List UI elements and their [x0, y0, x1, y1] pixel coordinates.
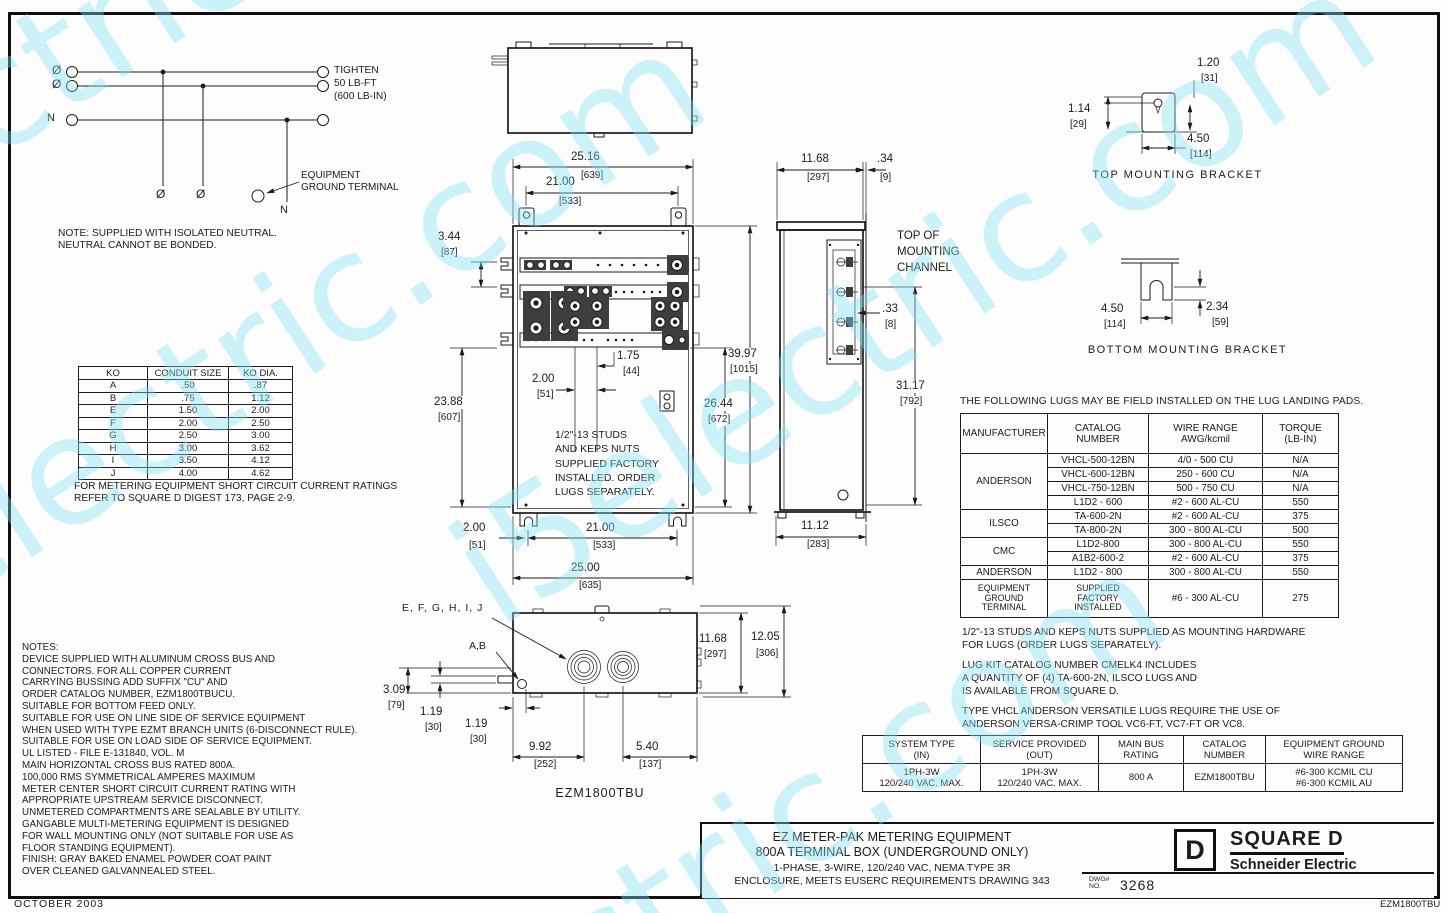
lug-cell: 375 [1263, 552, 1339, 566]
ko-cell: J [79, 467, 148, 480]
ko-cell: B [79, 392, 148, 405]
dim-label-mm: [87] [440, 247, 459, 259]
dim-label: 21.00 [545, 176, 576, 189]
dim-label-mm: [114] [1189, 149, 1213, 161]
lug-cell: 300 - 800 AL-CU [1149, 566, 1263, 580]
mounting-channel-label: TOP OF MOUNTING CHANNEL [897, 228, 960, 276]
bottom-view-caption: EZM1800TBU [540, 786, 660, 800]
dim-label-mm: [30] [469, 734, 488, 746]
dim-label-mm: [306] [755, 648, 779, 660]
spec-cell: 800 A [1099, 764, 1184, 792]
drawing-subtitle: 1-PHASE, 3-WIRE, 120/240 VAC, NEMA TYPE … [702, 862, 1082, 888]
phase-symbol: Ø [196, 188, 205, 202]
dim-label: 25.16 [570, 151, 601, 164]
ko-cell: 4.62 [229, 467, 293, 480]
dim-label-mm: [635] [578, 580, 602, 592]
dim-label-mm: [114] [1103, 319, 1127, 331]
wiring-schematic [67, 67, 329, 203]
dim-label: 11.68 [800, 153, 830, 166]
ko-cell: 2.50 [229, 417, 293, 430]
bottom-view [399, 606, 791, 762]
dim-label-mm: [533] [592, 540, 616, 552]
ko-cell: 3.50 [148, 455, 229, 468]
dim-label-mm: [9] [879, 172, 892, 184]
lug-cell: #2 - 600 AL-CU [1149, 510, 1263, 524]
dim-label: 23.88 [433, 396, 464, 409]
dim-label-mm: [137] [638, 759, 662, 771]
spec-cell: 1PH-3W 120/240 VAC. MAX. [863, 764, 981, 792]
title-block-divider [1082, 872, 1434, 874]
manufacturer-cell: ILSCO [961, 510, 1048, 538]
lug-cell: TA-600-2N [1048, 510, 1149, 524]
dim-label-mm: [51] [468, 540, 487, 552]
dim-label: 1.75 [616, 350, 640, 363]
col-header: KO [79, 367, 148, 380]
brand-name: SQUARE D [1230, 828, 1344, 855]
lug-cell: L1D2 - 600 [1048, 496, 1149, 510]
neutral-label: N [280, 204, 288, 217]
ko-cell: 2.50 [148, 430, 229, 443]
footer-date: OCTOBER 2003 [14, 898, 104, 910]
equipment-ground-label: EQUIPMENT GROUND TERMINAL [301, 170, 399, 194]
dim-label-mm: [31] [1200, 73, 1219, 85]
dim-label: 2.00 [462, 522, 486, 535]
top-view [492, 42, 697, 137]
lug-cell: 500 [1263, 524, 1339, 538]
phase-symbol: Ø [52, 64, 61, 78]
title-block-logo: D SQUARE D Schneider Electric DWG# NO. 3… [1082, 822, 1434, 898]
digest-note: FOR METERING EQUIPMENT SHORT CIRCUIT CUR… [74, 481, 397, 504]
ko-cell: .87 [229, 380, 293, 393]
dim-label-mm: [79] [387, 700, 406, 712]
dim-label-mm: [297] [806, 172, 830, 184]
col-header: SERVICE PROVIDED (OUT) [981, 736, 1099, 764]
lug-cell: 275 [1263, 580, 1339, 618]
dim-label-mm: [59] [1211, 317, 1230, 329]
dim-label-mm: [44] [622, 366, 641, 378]
lug-note-kit: LUG KIT CATALOG NUMBER CMELK4 INCLUDES A… [962, 660, 1197, 698]
lug-cell: VHCL-600-12BN [1048, 468, 1149, 482]
dim-label: 1.20 [1196, 57, 1220, 70]
dim-label-mm: [672] [707, 414, 731, 426]
dim-label-mm: [792] [899, 396, 923, 408]
lug-cell: N/A [1263, 482, 1339, 496]
lug-cell: 4/0 - 500 CU [1149, 454, 1263, 468]
dim-label: .33 [881, 303, 899, 316]
ko-cell: I [79, 455, 148, 468]
top-mounting-bracket [1104, 80, 1197, 154]
ko-cell: 1.12 [229, 392, 293, 405]
lug-cell: N/A [1263, 468, 1339, 482]
dim-label: 21.00 [585, 522, 616, 535]
col-header: MAIN BUS RATING [1099, 736, 1184, 764]
lug-cell: 250 - 600 CU [1149, 468, 1263, 482]
ko-cell: H [79, 442, 148, 455]
ko-cell: 3.62 [229, 442, 293, 455]
dim-label: 11.68 [698, 633, 728, 646]
dim-label: 39.97 [727, 348, 758, 361]
col-header: SYSTEM TYPE (IN) [863, 736, 981, 764]
lug-cell: 300 - 800 AL-CU [1149, 524, 1263, 538]
spec-table: SYSTEM TYPE (IN) SERVICE PROVIDED (OUT) … [862, 735, 1403, 792]
dim-label-mm: [639] [580, 170, 604, 182]
footer-part-number: EZM1800TBU [1380, 900, 1440, 911]
dim-label: 25.00 [570, 562, 601, 575]
dim-label: 2.00 [531, 373, 555, 386]
phase-symbol: Ø [156, 188, 165, 202]
dwg-label: DWG# NO. [1089, 876, 1109, 890]
dim-label: 1.19 [464, 718, 488, 731]
lug-cell: #2 - 600 AL-CU [1149, 496, 1263, 510]
neutral-label: N [47, 112, 55, 125]
col-header: KO DIA. [229, 367, 293, 380]
spec-cell: EZM1800TBU [1184, 764, 1266, 792]
dim-label-mm: [283] [806, 539, 830, 551]
drawing-sheet: i5electric.com i5electric.com i5electric… [0, 0, 1445, 913]
studs-note: 1/2"-13 STUDS AND KEPS NUTS SUPPLIED FAC… [555, 428, 659, 499]
dim-label: 12.05 [750, 631, 781, 644]
dim-label: 2.34 [1205, 301, 1229, 314]
ko-cell: 2.00 [148, 417, 229, 430]
dim-label: 9.92 [528, 741, 552, 754]
dim-label-mm: [1015] [729, 364, 759, 376]
col-header: CATALOG NUMBER [1184, 736, 1266, 764]
square-d-logo-letter: D [1185, 835, 1205, 865]
col-header: CATALOG NUMBER [1048, 414, 1149, 454]
bottom-bracket-caption: BOTTOM MOUNTING BRACKET [1085, 344, 1290, 357]
lug-cell: L1D2 - 800 [1048, 566, 1149, 580]
bottom-mounting-bracket [1121, 259, 1206, 324]
lug-note-studs: 1/2"-13 STUDS AND KEPS NUTS SUPPLIED AS … [962, 627, 1305, 653]
dim-label-mm: [29] [1069, 119, 1088, 131]
lug-cell: 500 - 750 CU [1149, 482, 1263, 496]
manufacturer-cell: EQUIPMENT GROUND TERMINAL [961, 580, 1048, 618]
col-header: CONDUIT SIZE [148, 367, 229, 380]
col-header: TORQUE (LB-IN) [1263, 414, 1339, 454]
lug-cell: 550 [1263, 566, 1339, 580]
brand-subname: Schneider Electric [1230, 857, 1357, 873]
lug-cell: #6 - 300 AL-CU [1149, 580, 1263, 618]
dim-label: 31.17 [895, 380, 926, 393]
dim-label: 1.19 [419, 706, 443, 719]
dim-label: 3.09 [382, 684, 406, 697]
lug-cell: VHCL-500-12BN [1048, 454, 1149, 468]
col-header: EQUIPMENT GROUND WIRE RANGE [1266, 736, 1403, 764]
manufacturer-cell: ANDERSON [961, 566, 1048, 580]
dim-label-mm: [51] [536, 389, 555, 401]
lug-cell: #2 - 600 AL-CU [1149, 552, 1263, 566]
ko-cell: 3.00 [229, 430, 293, 443]
dim-label-mm: [8] [884, 319, 897, 331]
col-header: WIRE RANGE AWG/kcmil [1149, 414, 1263, 454]
knockout-leader-label: E, F, G, H, I, J [402, 602, 483, 614]
lug-note-vhcl: TYPE VHCL ANDERSON VERSATILE LUGS REQUIR… [962, 706, 1280, 732]
dim-label: 4.50 [1186, 133, 1210, 146]
ko-cell: F [79, 417, 148, 430]
lug-cell: 550 [1263, 538, 1339, 552]
dim-label-mm: [607] [437, 412, 461, 424]
spec-cell: 1PH-3W 120/240 VAC. MAX. [981, 764, 1099, 792]
side-view [774, 162, 922, 546]
ko-cell: 3.00 [148, 442, 229, 455]
ko-table: KO CONDUIT SIZE KO DIA. A.50.87 B.751.12… [78, 366, 293, 480]
ko-cell: E [79, 405, 148, 418]
dim-label: 4.50 [1100, 303, 1124, 316]
ko-cell: G [79, 430, 148, 443]
col-header: MANUFACTURER [961, 414, 1048, 454]
dim-label-mm: [533] [558, 196, 582, 208]
dim-label: 26.44 [703, 398, 734, 411]
ko-cell: 1.50 [148, 405, 229, 418]
dim-label: 3.44 [437, 231, 461, 244]
drawing-title: EZ METER-PAK METERING EQUIPMENT 800A TER… [702, 830, 1082, 860]
ko-cell: 4.12 [229, 455, 293, 468]
dim-label: .34 [876, 153, 894, 166]
dim-label: 11.12 [800, 520, 830, 533]
phase-symbol: Ø [52, 78, 61, 92]
ko-cell: .50 [148, 380, 229, 393]
top-bracket-caption: TOP MOUNTING BRACKET [1090, 169, 1265, 182]
dwg-number: 3268 [1120, 877, 1155, 893]
ko-cell: 2.00 [229, 405, 293, 418]
isolated-neutral-note: NOTE: SUPPLIED WITH ISOLATED NEUTRAL. NE… [58, 228, 277, 252]
ko-cell: A [79, 380, 148, 393]
lug-cell: VHCL-750-12BN [1048, 482, 1149, 496]
tighten-note: TIGHTEN 50 LB-FT (600 LB-IN) [334, 64, 387, 103]
knockout-leader-label: A,B [469, 640, 486, 652]
lug-cell: L1D2-800 [1048, 538, 1149, 552]
square-d-logo-icon: D [1174, 829, 1216, 871]
spec-cell: #6-300 KCMIL CU #6-300 KCMIL AU [1266, 764, 1403, 792]
dim-label-mm: [30] [424, 722, 443, 734]
manufacturer-cell: ANDERSON [961, 454, 1048, 510]
general-notes: NOTES: DEVICE SUPPLIED WITH ALUMINUM CRO… [22, 642, 357, 878]
lug-cell: A1B2-600-2 [1048, 552, 1149, 566]
ko-cell: 4.00 [148, 467, 229, 480]
dim-label-mm: [297] [703, 649, 727, 661]
lug-cell: TA-800-2N [1048, 524, 1149, 538]
lug-table: MANUFACTURER CATALOG NUMBER WIRE RANGE A… [960, 413, 1339, 618]
title-block-description: EZ METER-PAK METERING EQUIPMENT 800A TER… [700, 822, 1084, 898]
lug-cell: N/A [1263, 454, 1339, 468]
lug-intro: THE FOLLOWING LUGS MAY BE FIELD INSTALLE… [960, 396, 1363, 408]
lug-cell: 375 [1263, 510, 1339, 524]
dim-label: 5.40 [635, 741, 659, 754]
dim-label: 1.14 [1067, 103, 1091, 116]
lug-cell: 300 - 800 AL-CU [1149, 538, 1263, 552]
ko-cell: .75 [148, 392, 229, 405]
lug-cell: 550 [1263, 496, 1339, 510]
dim-label-mm: [252] [533, 759, 557, 771]
manufacturer-cell: CMC [961, 538, 1048, 566]
lug-cell: SUPPLIED FACTORY INSTALLED [1048, 580, 1149, 618]
